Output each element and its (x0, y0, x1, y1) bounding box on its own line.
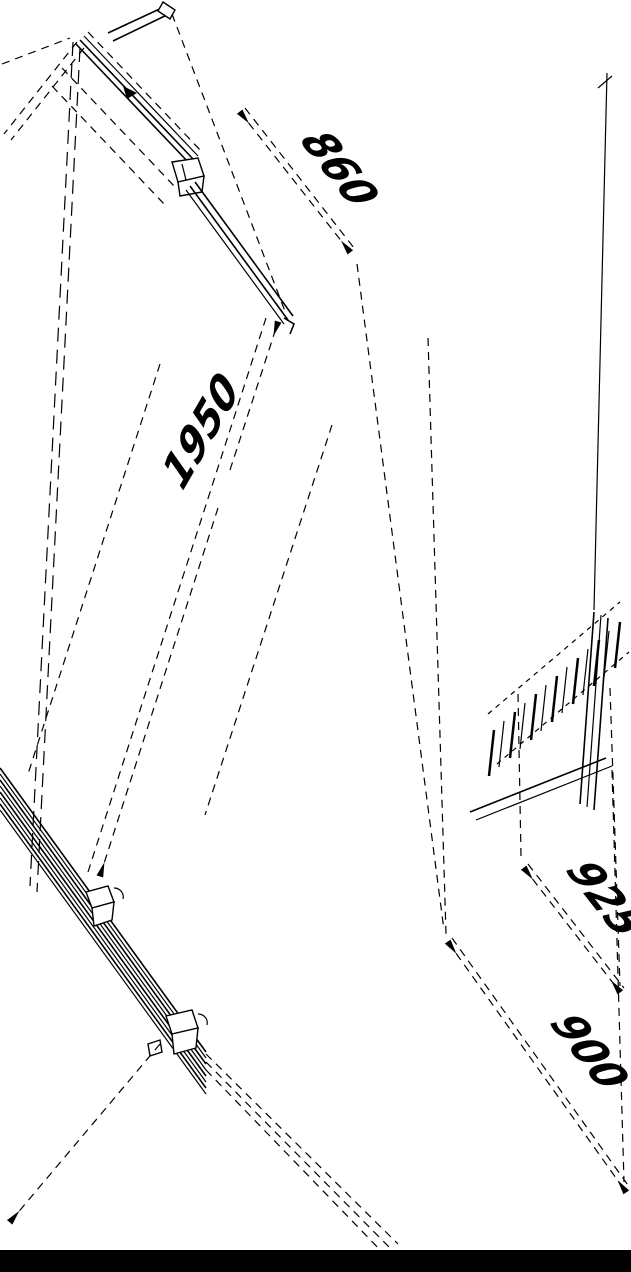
top-width-dimension-label: 860 (286, 128, 392, 209)
drawing-canvas: 1950 860 925 (0, 0, 631, 1272)
top-hinge (172, 158, 204, 196)
technical-drawing: 1950 860 925 (0, 0, 631, 1272)
bottom-hinge (148, 1010, 207, 1056)
top-width-dimension: 860 (240, 108, 444, 930)
footer-bar (0, 1250, 631, 1272)
side-panel (470, 73, 629, 820)
middle-hinge (86, 886, 123, 926)
door-bottom-rail (0, 768, 398, 1256)
support-arm (108, 2, 175, 41)
lower-right-width-dimension-label: 900 (536, 1011, 631, 1092)
height-dimension-label: 1950 (157, 359, 246, 504)
upper-right-width-dimension-label: 925 (552, 858, 631, 939)
height-dimension: 1950 (10, 322, 278, 1222)
lower-right-width-dimension: 900 (448, 770, 631, 1192)
